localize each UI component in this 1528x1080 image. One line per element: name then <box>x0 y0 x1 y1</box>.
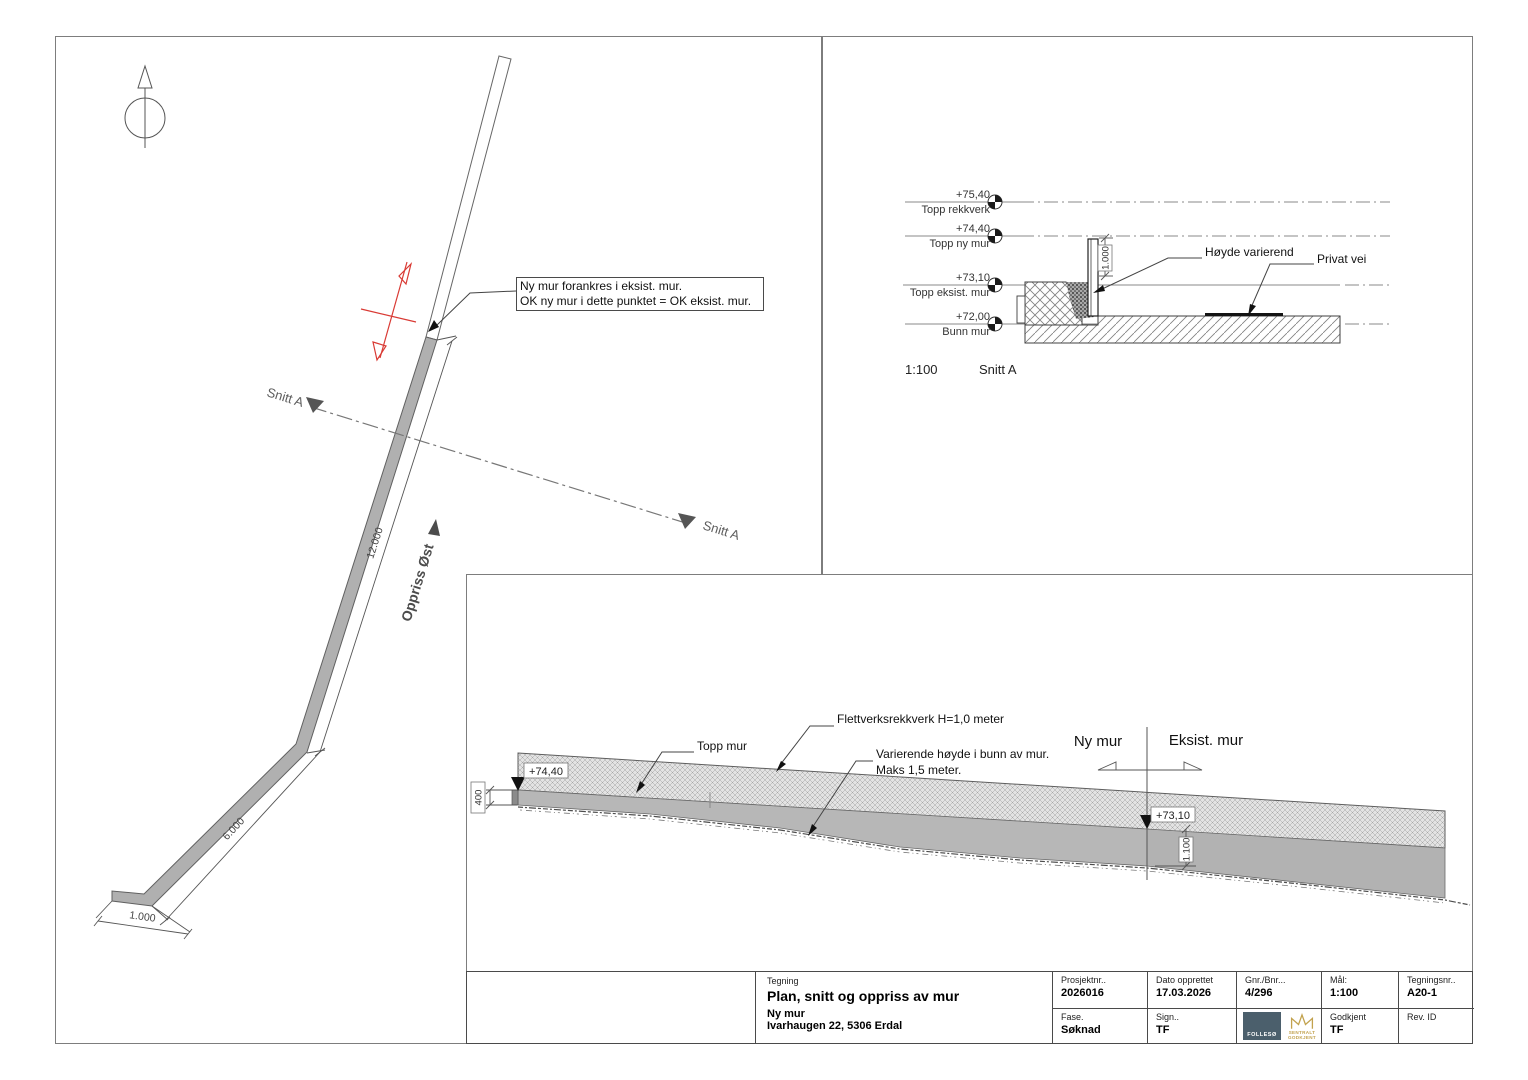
titleblock-empty-cell <box>467 972 755 1043</box>
annotation-line-1: Ny mur forankres i eksist. mur. <box>520 279 760 294</box>
rev-label: Rev. ID <box>1407 1012 1470 1022</box>
godkjent-label: Godkjent <box>1330 1012 1394 1022</box>
tegningsnr-label: Tegningsnr.. <box>1407 975 1470 985</box>
tegningsnr-value: A20-1 <box>1407 987 1470 999</box>
sign-label: Sign.. <box>1156 1012 1232 1022</box>
follesoe-logo: FOLLESØ <box>1243 1012 1281 1040</box>
annotation-line-2: OK ny mur i dette punktet = OK eksist. m… <box>520 294 760 309</box>
sentralt-godkjent-logo: SENTRALT GODKJENT <box>1288 1012 1316 1040</box>
prosjektnr-label: Prosjektnr.. <box>1061 975 1143 985</box>
sentralt-text-2: GODKJENT <box>1288 1035 1316 1040</box>
drawing-sheet: Snitt A Snitt A Oppriss Øst <box>0 0 1528 1080</box>
titleblock-col-tegningsnr: Tegningsnr.. A20-1 Rev. ID <box>1398 972 1474 1043</box>
drawing-title: Plan, snitt og oppriss av mur <box>767 988 1048 1004</box>
tegning-label: Tegning <box>767 976 1048 986</box>
drawing-subtitle: Ny mur <box>767 1008 1048 1020</box>
plan-annotation-box: Ny mur forankres i eksist. mur. OK ny mu… <box>516 277 764 311</box>
gnr-value: 4/296 <box>1245 987 1317 999</box>
prosjektnr-value: 2026016 <box>1061 987 1143 999</box>
fase-label: Fase. <box>1061 1012 1143 1022</box>
dato-value: 17.03.2026 <box>1156 987 1232 999</box>
dato-label: Dato opprettet <box>1156 975 1232 985</box>
godkjent-value: TF <box>1330 1024 1394 1036</box>
maal-value: 1:100 <box>1330 987 1394 999</box>
titleblock-col-prosjekt: Prosjektnr.. 2026016 Fase. Søknad <box>1052 972 1147 1043</box>
sign-value: TF <box>1156 1024 1232 1036</box>
titleblock-col-maal: Mål: 1:100 Godkjent TF <box>1321 972 1398 1043</box>
fase-value: Søknad <box>1061 1024 1143 1036</box>
titleblock-col-gnr: Gnr./Bnr... 4/296 FOLLESØ SENTRALT GODKJ… <box>1236 972 1321 1043</box>
titleblock-title-cell: Tegning Plan, snitt og oppriss av mur Ny… <box>755 972 1052 1043</box>
titleblock-col-dato: Dato opprettet 17.03.2026 Sign.. TF <box>1147 972 1236 1043</box>
title-block: Tegning Plan, snitt og oppriss av mur Ny… <box>466 971 1473 1044</box>
section-viewport <box>822 36 1473 577</box>
crown-icon <box>1289 1012 1315 1030</box>
drawing-address: Ivarhaugen 22, 5306 Erdal <box>767 1020 1048 1032</box>
gnr-label: Gnr./Bnr... <box>1245 975 1317 985</box>
maal-label: Mål: <box>1330 975 1394 985</box>
